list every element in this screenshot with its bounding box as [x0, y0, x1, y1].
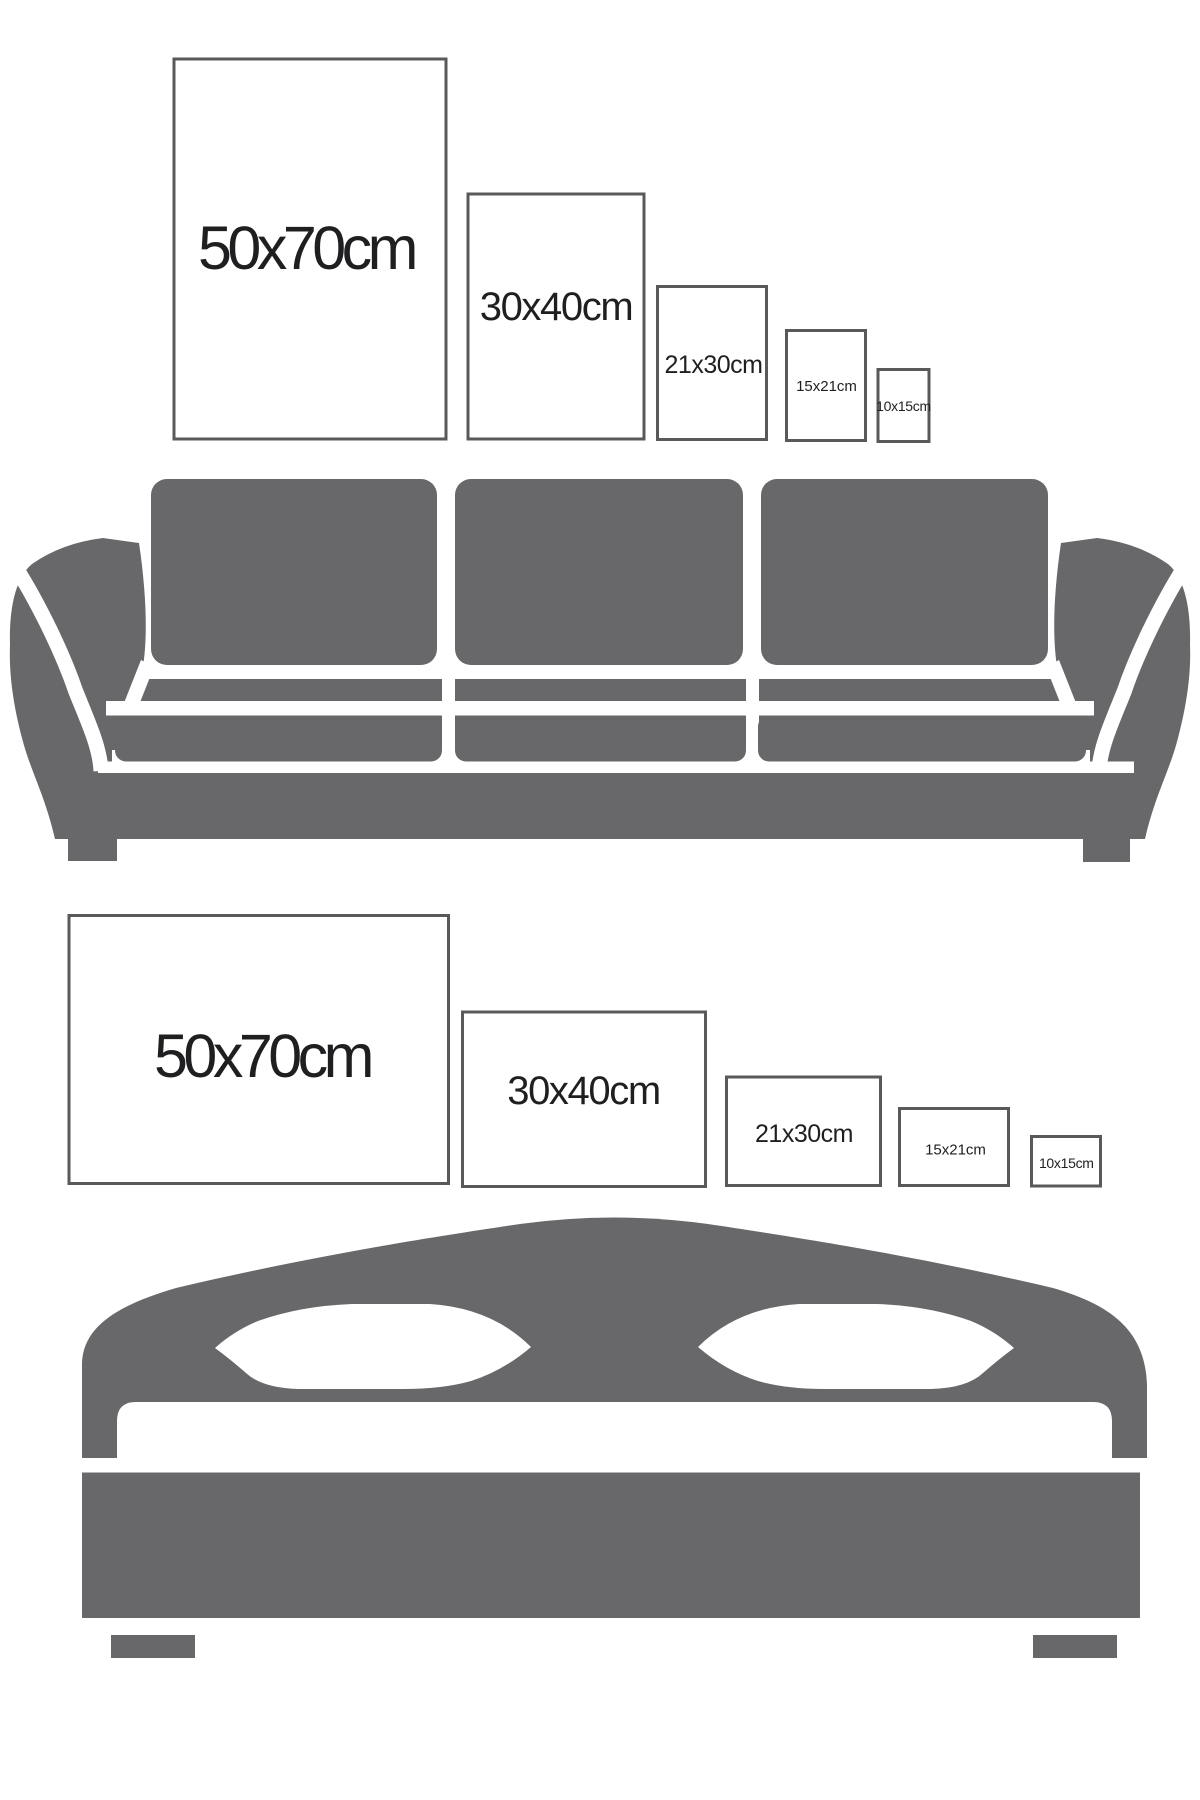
svg-text:30x40cm: 30x40cm — [507, 1069, 660, 1113]
svg-text:10x15cm: 10x15cm — [1039, 1155, 1094, 1171]
svg-text:21x30cm: 21x30cm — [665, 351, 763, 379]
svg-text:15x21cm: 15x21cm — [925, 1142, 986, 1159]
svg-text:15x21cm: 15x21cm — [796, 378, 857, 395]
svg-text:10x15cm: 10x15cm — [876, 398, 931, 414]
svg-text:21x30cm: 21x30cm — [755, 1120, 853, 1148]
svg-text:50x70cm: 50x70cm — [198, 214, 415, 282]
svg-text:30x40cm: 30x40cm — [480, 285, 633, 329]
svg-text:50x70cm: 50x70cm — [154, 1022, 371, 1090]
